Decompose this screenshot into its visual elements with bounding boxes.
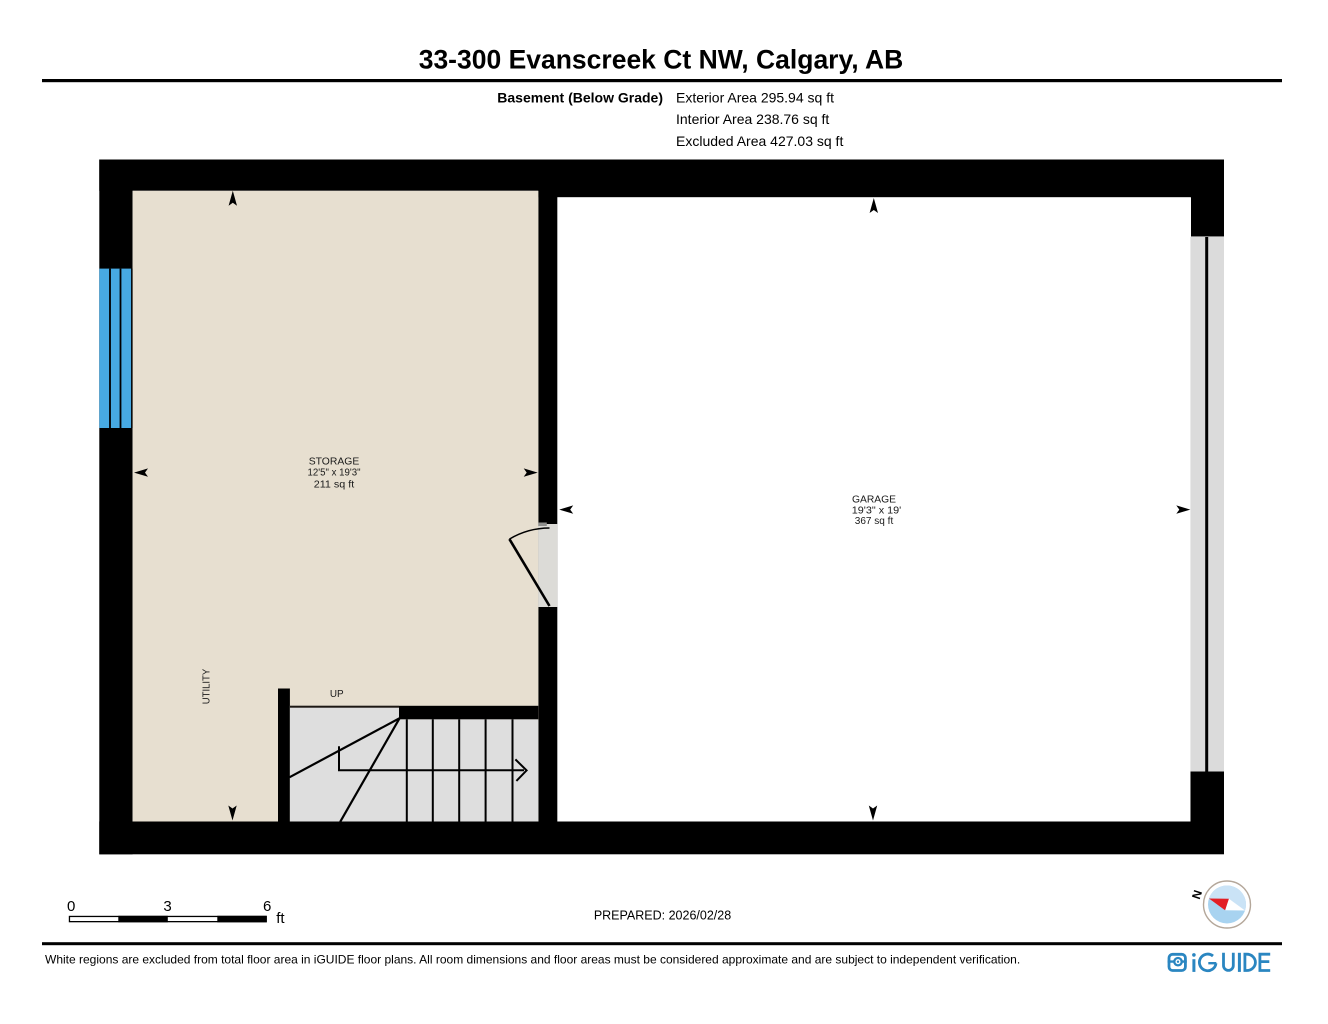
- svg-text:Basement (Below Grade): Basement (Below Grade): [497, 89, 663, 105]
- svg-text:211 sq ft: 211 sq ft: [314, 478, 355, 490]
- svg-text:ft: ft: [276, 910, 285, 927]
- svg-text:12'5" x 19'3": 12'5" x 19'3": [308, 467, 361, 478]
- svg-text:UTILITY: UTILITY: [202, 668, 213, 704]
- svg-text:UP: UP: [330, 688, 344, 700]
- svg-text:33-300 Evanscreek Ct NW, Calga: 33-300 Evanscreek Ct NW, Calgary, AB: [419, 44, 904, 74]
- svg-text:Excluded Area 427.03 sq ft: Excluded Area 427.03 sq ft: [676, 133, 843, 149]
- svg-text:White regions are excluded fro: White regions are excluded from total fl…: [45, 952, 1020, 966]
- svg-text:PREPARED: 2026/02/28: PREPARED: 2026/02/28: [594, 909, 731, 923]
- svg-text:GARAGE: GARAGE: [852, 493, 896, 505]
- svg-text:N: N: [1189, 888, 1205, 901]
- svg-text:0: 0: [67, 898, 75, 915]
- svg-text:Exterior Area 295.94 sq ft: Exterior Area 295.94 sq ft: [676, 89, 834, 105]
- svg-text:6: 6: [263, 898, 271, 915]
- svg-text:3: 3: [163, 898, 171, 915]
- svg-text:Interior Area 238.76 sq ft: Interior Area 238.76 sq ft: [676, 111, 829, 127]
- svg-text:STORAGE: STORAGE: [309, 456, 360, 468]
- svg-text:367 sq ft: 367 sq ft: [855, 515, 894, 527]
